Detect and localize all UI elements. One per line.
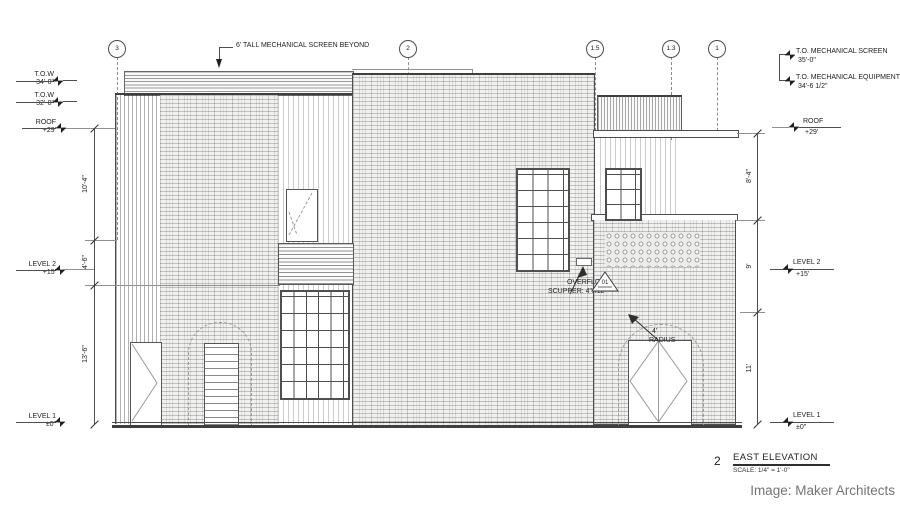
elevation-marker-icon <box>56 123 66 133</box>
grid-bubble-label: 1.5 <box>590 45 599 52</box>
dim-left-upper: 10'-4" <box>81 164 91 204</box>
grid-bubble-1-5: 1.5 <box>586 40 604 58</box>
left-dimension-line <box>94 128 95 424</box>
perforated-brick-panel <box>605 232 700 267</box>
level-2-right-name: LEVEL 2 <box>793 259 820 267</box>
window-operation-dash-icon <box>287 190 314 238</box>
balcony-louver-band <box>278 243 354 285</box>
dim-right-lower: 11' <box>745 348 755 388</box>
level-tow34-underline <box>16 81 54 82</box>
level-2-right-line <box>770 269 834 270</box>
radius-label: RADIUS <box>649 337 675 345</box>
right-ext-roof <box>737 133 765 134</box>
casement-window <box>286 189 318 242</box>
level-2-left-underline <box>16 270 56 271</box>
ground-line <box>112 422 742 423</box>
level-roof-right-name: ROOF <box>803 118 823 126</box>
grid-line-1 <box>717 57 718 136</box>
tom-screen-name: T.O. MECHANICAL SCREEN <box>796 48 888 56</box>
level-roof-right-underline <box>799 127 841 128</box>
elevation-marker-icon <box>55 265 65 275</box>
level-roof-right-stub <box>772 127 789 128</box>
louver-door <box>130 342 162 426</box>
elevation-marker-icon <box>783 264 793 274</box>
image-credit: Image: Maker Architects <box>600 483 895 498</box>
level-name: ROOF <box>14 119 56 127</box>
elevation-marker-icon <box>55 417 65 427</box>
tom-equipment-elev: 34'-6 1/2" <box>798 83 828 91</box>
grid-bubble-label: 2 <box>406 45 410 52</box>
level-1-right-name: LEVEL 1 <box>793 412 820 420</box>
grid-bubble-1: 1 <box>708 40 726 58</box>
overflow-leader-arrow-icon <box>566 258 592 296</box>
mech-note-leader-h <box>219 47 233 48</box>
level-1-right-line <box>770 422 834 423</box>
base-slab-line <box>112 425 742 428</box>
panel-door <box>204 343 239 426</box>
elevation-marker-icon <box>789 122 799 132</box>
grid-bubble-3: 3 <box>108 40 126 58</box>
level-tow32-label: T.O.W 32'-0" <box>10 92 54 108</box>
right-dimension-line <box>757 133 758 424</box>
right-bracket-line <box>779 54 780 81</box>
right-ext-mid2 <box>740 312 765 313</box>
grid-bubble-label: 1.3 <box>666 45 675 52</box>
level-tow32-stub <box>63 101 77 102</box>
level-2-right-elev: +15' <box>796 271 809 279</box>
level-tow32-underline <box>16 102 54 103</box>
level-1-left-underline <box>16 422 56 423</box>
level-2-left-stub <box>63 269 94 270</box>
arched-double-door <box>628 340 692 426</box>
level-1-left-label: LEVEL 1 ±0" <box>14 413 56 429</box>
level-name: T.O.W <box>10 71 54 79</box>
central-mass-window <box>516 168 570 272</box>
door-chevron-icon <box>131 343 158 422</box>
elevation-marker-icon <box>53 76 63 86</box>
level-name: T.O.W <box>10 92 54 100</box>
level-roof-right-elev: +29' <box>805 129 818 137</box>
level-roof-left-label: ROOF +29' <box>14 119 56 135</box>
left-ext-mid2 <box>85 285 280 286</box>
drawing-title: EAST ELEVATION <box>733 452 818 463</box>
grid-line-1-5 <box>595 57 596 136</box>
drawing-scale: SCALE: 1/4" = 1'-0" <box>733 467 790 474</box>
drawing-number: 2 <box>714 454 721 468</box>
elevation-marker-icon <box>785 76 795 86</box>
radius-value: 4' <box>652 328 657 336</box>
dim-right-upper: 8'-4" <box>745 156 755 196</box>
dim-left-lower: 13'-6" <box>81 334 91 374</box>
level-tow34-stub <box>63 80 77 81</box>
dim-left-middle: 4'-6" <box>81 242 91 282</box>
left-ext-mid1 <box>85 240 117 241</box>
level-tow34-label: T.O.W 34'-0" <box>10 71 54 87</box>
level-name: LEVEL 2 <box>14 261 56 269</box>
mech-note-arrow-icon <box>216 59 222 68</box>
screen-beyond-top-line <box>352 69 472 70</box>
level-1-right-elev: ±0" <box>796 424 806 432</box>
level-roof-left-underline <box>22 128 56 129</box>
elevation-marker-icon <box>53 97 63 107</box>
level-name: LEVEL 1 <box>14 413 56 421</box>
elevation-marker-icon <box>783 417 793 427</box>
mech-note-leader-v <box>219 47 220 59</box>
elevation-marker-icon <box>785 50 795 60</box>
title-rule <box>733 464 830 466</box>
mech-screen-note: 6' TALL MECHANICAL SCREEN BEYOND <box>236 42 369 50</box>
east-elevation-drawing: 3 2 1.5 1.3 1 10'-4" 4'-6" 13'-6" 8'-4" … <box>0 0 900 506</box>
grid-bubble-1-3: 1.3 <box>662 40 680 58</box>
tom-equipment-name: T.O. MECHANICAL EQUIPMENT <box>796 74 900 82</box>
storefront-window-left <box>280 290 350 400</box>
right-ext-mid1 <box>736 220 765 221</box>
grid-bubble-2: 2 <box>399 40 417 58</box>
level-2-left-label: LEVEL 2 +15' <box>14 261 56 277</box>
right-upper-window <box>605 168 642 221</box>
grid-bubble-label: 1 <box>715 45 719 52</box>
grid-bubble-label: 3 <box>115 45 119 52</box>
tom-screen-elev: 35'-0" <box>798 57 816 65</box>
left-ext-roof <box>63 128 115 129</box>
detail-marker-number: 01 <box>598 280 612 287</box>
mech-equipment-screen <box>597 95 682 134</box>
door-diamond-brace-icon <box>629 341 688 422</box>
dim-right-middle: 9' <box>745 246 755 286</box>
